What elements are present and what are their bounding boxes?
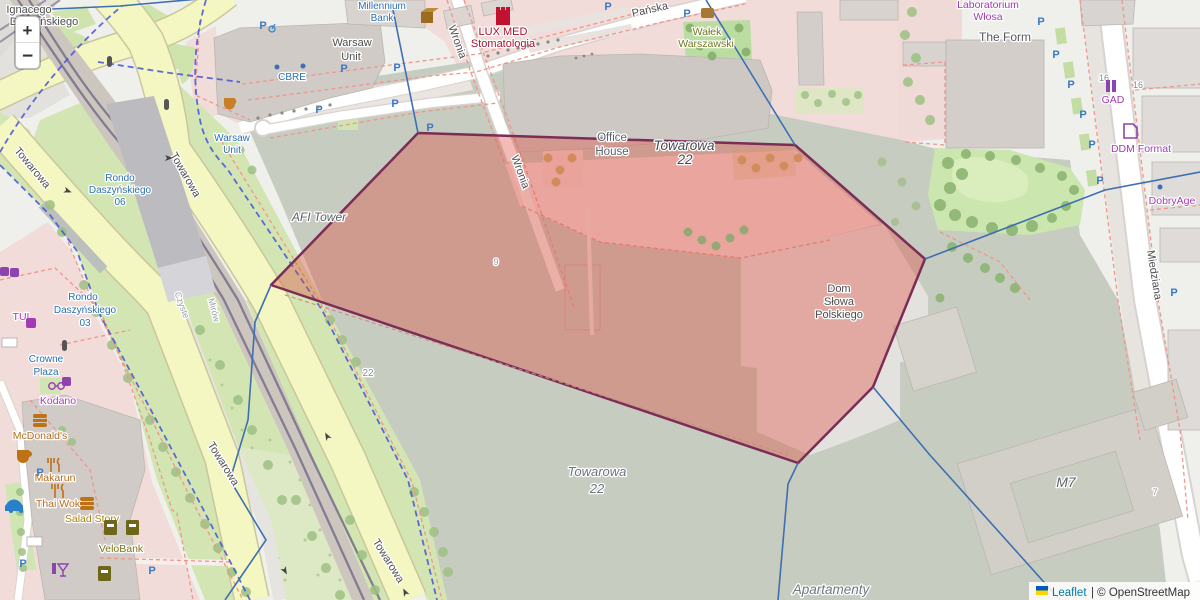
- svg-text:Laboratorium: Laboratorium: [957, 0, 1019, 11]
- svg-text:P: P: [1096, 175, 1103, 187]
- svg-text:Wałek: Wałek: [693, 26, 723, 38]
- svg-text:Polskiego: Polskiego: [815, 309, 863, 321]
- svg-text:P: P: [148, 565, 155, 577]
- svg-text:AFI Tower: AFI Tower: [291, 210, 347, 224]
- svg-text:GAD: GAD: [1102, 94, 1125, 106]
- svg-text:Unit: Unit: [223, 145, 241, 156]
- svg-text:Leaflet: Leaflet: [1052, 587, 1087, 599]
- svg-text:Ignacego: Ignacego: [6, 4, 51, 16]
- svg-text:P: P: [340, 63, 347, 75]
- svg-text:22: 22: [362, 368, 374, 379]
- svg-text:22: 22: [589, 481, 605, 496]
- svg-text:Warszawski: Warszawski: [678, 38, 734, 50]
- svg-text:Bank: Bank: [371, 13, 395, 24]
- svg-text:22: 22: [676, 152, 693, 167]
- svg-text:Daszyńskiego: Daszyńskiego: [54, 305, 117, 316]
- svg-text:−: −: [22, 46, 33, 67]
- svg-text:Rondo: Rondo: [68, 292, 98, 303]
- svg-text:Millennium: Millennium: [358, 1, 406, 12]
- svg-text:P: P: [391, 98, 398, 110]
- svg-text:P: P: [1037, 16, 1044, 28]
- svg-text:P: P: [604, 1, 611, 13]
- svg-text:P: P: [683, 8, 690, 20]
- svg-text:16: 16: [1133, 80, 1143, 90]
- svg-text:DDM Format: DDM Format: [1111, 143, 1171, 155]
- svg-text:Unit: Unit: [341, 51, 361, 63]
- svg-text:DobryAge: DobryAge: [1149, 195, 1196, 207]
- svg-text:Kodano: Kodano: [40, 395, 76, 407]
- svg-text:Rondo: Rondo: [105, 173, 135, 184]
- svg-text:Dom: Dom: [827, 283, 850, 295]
- svg-text:P: P: [426, 122, 433, 134]
- svg-text:P: P: [393, 62, 400, 74]
- svg-text:P: P: [259, 20, 266, 32]
- svg-text:LUX MED: LUX MED: [479, 26, 528, 38]
- svg-text:03: 03: [79, 318, 91, 329]
- svg-text:Thai Wok: Thai Wok: [36, 498, 81, 510]
- svg-text:The Form: The Form: [979, 30, 1031, 44]
- svg-text:9: 9: [493, 257, 498, 267]
- svg-text:P: P: [1052, 49, 1059, 61]
- svg-text:M7: M7: [1056, 474, 1077, 490]
- svg-text:Daszyńskiego: Daszyńskiego: [89, 185, 152, 196]
- svg-text:P: P: [19, 558, 26, 570]
- svg-text:Włosa: Włosa: [973, 11, 1002, 23]
- svg-text:House: House: [595, 146, 628, 158]
- svg-text:Stomatologia: Stomatologia: [471, 38, 536, 50]
- svg-text:Towarowa: Towarowa: [568, 464, 627, 479]
- svg-text:Warsaw: Warsaw: [332, 37, 371, 49]
- svg-text:CBRE: CBRE: [278, 72, 306, 83]
- svg-text:P: P: [1079, 109, 1086, 121]
- svg-text:Towarowa: Towarowa: [653, 138, 715, 153]
- svg-text:| © OpenStreetMap: | © OpenStreetMap: [1091, 587, 1190, 599]
- svg-text:Plaza: Plaza: [33, 367, 58, 378]
- svg-text:P: P: [1088, 139, 1095, 151]
- svg-text:P: P: [1170, 287, 1177, 299]
- svg-text:McDonald's: McDonald's: [13, 430, 68, 442]
- svg-text:+: +: [23, 21, 33, 40]
- svg-text:VeloBank: VeloBank: [99, 543, 144, 555]
- svg-text:Słowa: Słowa: [824, 296, 855, 308]
- svg-text:Warsaw: Warsaw: [214, 133, 251, 144]
- svg-text:Office: Office: [597, 132, 627, 144]
- svg-text:Apartamenty: Apartamenty: [792, 582, 871, 597]
- svg-text:06: 06: [114, 197, 126, 208]
- svg-text:P: P: [36, 467, 43, 479]
- svg-text:P: P: [1067, 79, 1074, 91]
- svg-text:Crowne: Crowne: [29, 354, 64, 365]
- svg-text:7: 7: [1152, 487, 1157, 497]
